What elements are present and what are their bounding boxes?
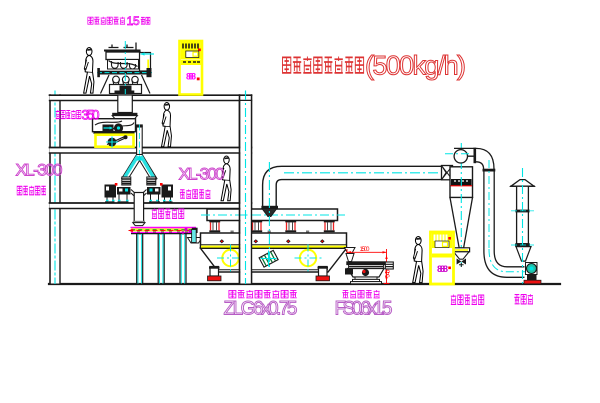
svg-text:XL-300: XL-300 bbox=[16, 161, 63, 180]
svg-text:XL-300: XL-300 bbox=[179, 165, 225, 184]
svg-text:(500kg/h): (500kg/h) bbox=[365, 51, 466, 81]
svg-text:888: 888 bbox=[186, 72, 196, 82]
svg-text:1.5: 1.5 bbox=[127, 14, 141, 28]
svg-text:545: 545 bbox=[385, 269, 391, 278]
svg-text:ZLG6x0.75: ZLG6x0.75 bbox=[224, 299, 298, 320]
svg-text:888: 888 bbox=[437, 264, 448, 275]
svg-text:1500: 1500 bbox=[360, 247, 371, 253]
svg-text:FS0.6x1.5: FS0.6x1.5 bbox=[335, 299, 393, 320]
svg-text:350: 350 bbox=[82, 108, 100, 123]
